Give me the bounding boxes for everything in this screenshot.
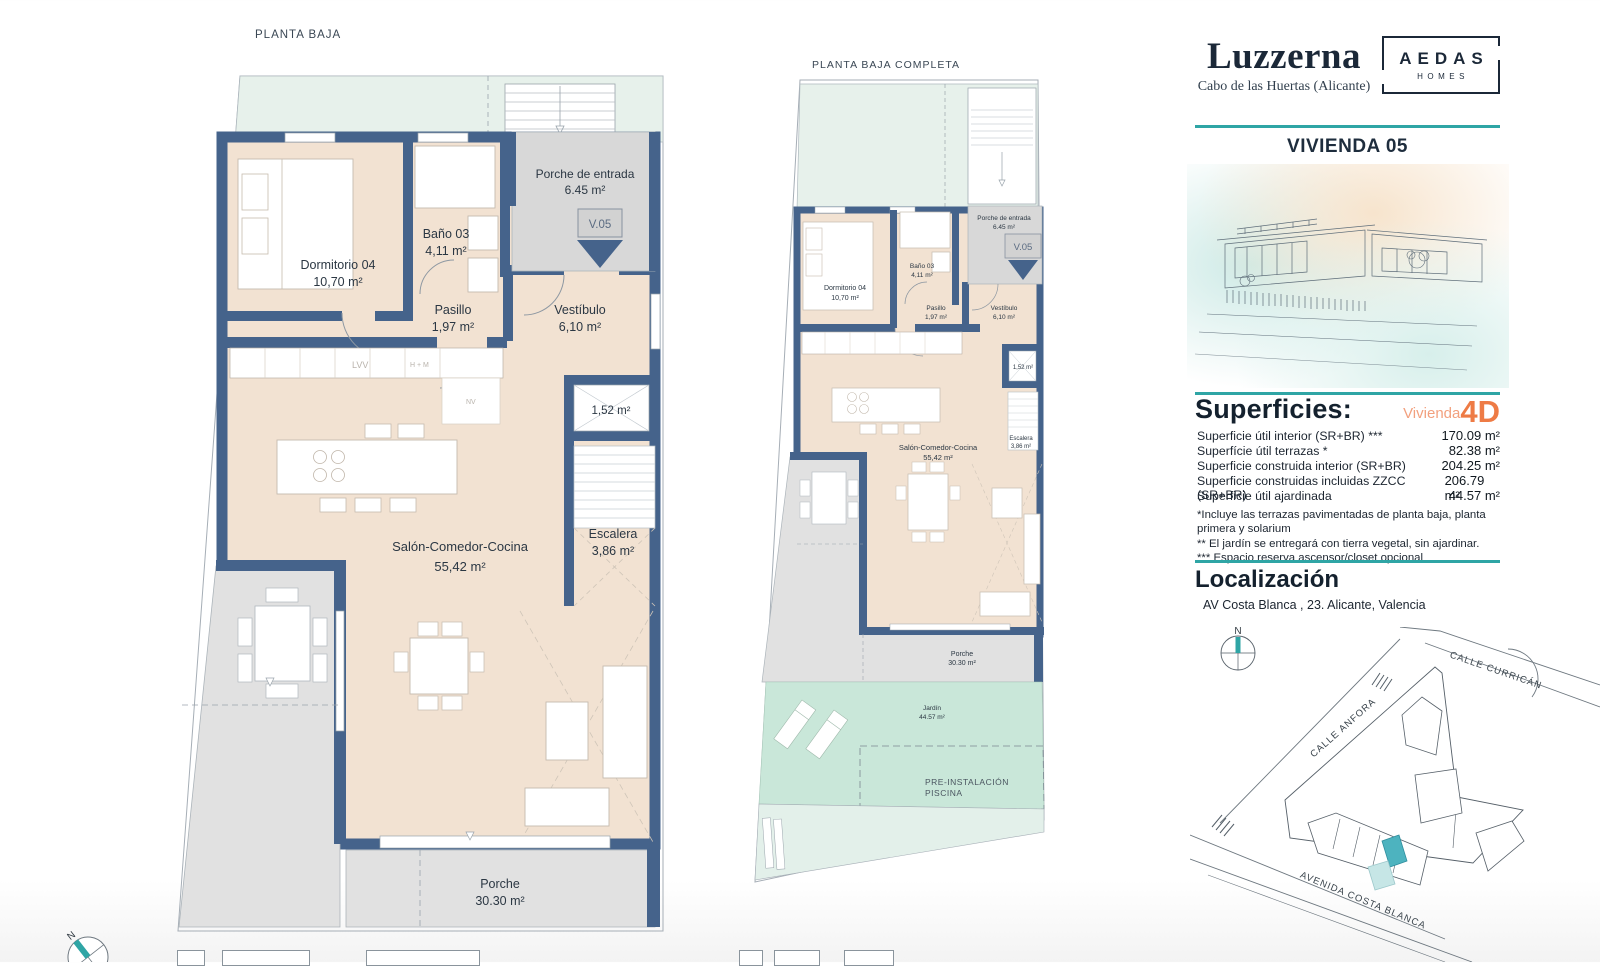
aedas-logo-subtext: HOMES — [1413, 72, 1469, 81]
divider — [1195, 125, 1500, 128]
piscina-line2: PISCINA — [925, 788, 963, 798]
glass-door — [380, 836, 610, 848]
scale-bar — [222, 950, 310, 966]
walkway — [755, 804, 1044, 880]
salon-area: 55,42 m² — [434, 559, 486, 574]
pasillo-area: 1,97 m² — [432, 320, 474, 334]
escalera-area: 3,86 m² — [1011, 444, 1031, 450]
footnote: *** Espacio reserva ascensor/closet opci… — [1197, 551, 1497, 565]
bano-area: 4,11 m² — [425, 244, 466, 258]
aedas-logo-text: AEDAS — [1393, 49, 1489, 69]
street-label-anfora: CALLE ANFORA — [1308, 696, 1378, 760]
plan-left-title: PLANTA BAJA — [255, 29, 341, 41]
row-value: 44.57 m² — [1449, 488, 1500, 503]
info-panel: Luzzerna Cabo de las Huertas (Alicante) … — [1195, 30, 1500, 600]
table-row: Superficie útil interior (SR+BR) *** 170… — [1197, 428, 1500, 443]
porche-name: Porche — [480, 877, 520, 891]
dormitorio-name: Dormitorio 04 — [300, 258, 375, 272]
jardin-name: Jardín — [923, 705, 941, 712]
kitchen-counter — [802, 332, 962, 354]
bano-name: Baño 03 — [910, 263, 935, 270]
exterior-stairs — [505, 84, 615, 138]
row-value: 204.25 m² — [1441, 458, 1500, 473]
toilet — [468, 258, 498, 292]
plan-north-compass: N — [48, 915, 128, 962]
scale-bar — [739, 950, 763, 966]
bano-name: Baño 03 — [423, 227, 470, 241]
escalera-name: Escalera — [1009, 436, 1033, 442]
window — [651, 294, 660, 349]
row-label: Superfície útil terrazas * — [1197, 444, 1328, 458]
crosswalk-hatch — [1212, 673, 1392, 836]
footnote: ** El jardín se entregará con tierra veg… — [1197, 537, 1497, 551]
vestibulo-area: 6,10 m² — [993, 314, 1016, 321]
floorplan-planta-baja-completa: PLANTA BAJA COMPLETA Porche de entrada 6… — [740, 52, 1070, 892]
window — [285, 133, 335, 142]
superficies-heading: Superficies: — [1195, 394, 1352, 425]
shower — [415, 146, 495, 208]
shaft-area: 1,52 m² — [592, 405, 631, 417]
divider — [1195, 560, 1500, 563]
scale-bar — [177, 950, 205, 966]
kitchen-label-lvv: LVV — [352, 360, 368, 370]
porche-entrada: Porche de entrada 6.45 m² V.05 — [506, 132, 659, 271]
aedas-logo: AEDAS HOMES — [1382, 36, 1500, 94]
dormitorio-area: 10,70 m² — [831, 295, 859, 302]
superficies-table: Superficie útil interior (SR+BR) *** 170… — [1197, 428, 1500, 503]
vestibulo-area: 6,10 m² — [559, 320, 601, 334]
vivienda-title: VIVIENDA 05 — [1195, 136, 1500, 158]
pasillo-name: Pasillo — [926, 305, 946, 312]
elevator-shaft: 1,52 m² — [1002, 344, 1043, 388]
project-subtitle: Cabo de las Huertas (Alicante) — [1195, 79, 1373, 95]
building-sketch — [1187, 164, 1509, 388]
porche-entrada-area: 6.45 m² — [993, 224, 1016, 231]
scale-bar — [774, 950, 820, 966]
row-value: 170.09 m² — [1441, 428, 1500, 443]
table-row: Superficie construidas incluidas ZZCC (S… — [1197, 473, 1500, 488]
bano-area: 4,11 m² — [911, 272, 933, 279]
escalera-area: 3,86 m² — [592, 544, 634, 558]
row-value: 82.38 m² — [1449, 443, 1500, 458]
porche: Porche 30.30 m² — [346, 844, 660, 927]
kitchen-label-hm: H + M — [410, 362, 429, 369]
footnote: *Incluye las terrazas pavimentadas de pl… — [1197, 508, 1497, 537]
localizacion-address: AV Costa Blanca , 23. Alicante, Valencia — [1203, 598, 1426, 612]
shaft-area: 1,52 m² — [1013, 365, 1033, 371]
vestibulo-name: Vestíbulo — [554, 303, 605, 317]
dormitorio-name: Dormitorio 04 — [824, 285, 866, 292]
porche-entrada-name: Porche de entrada — [977, 215, 1031, 222]
map-north-compass: N — [1221, 627, 1255, 670]
unit-label: V.05 — [589, 219, 612, 231]
porche-area: 30.30 m² — [948, 660, 976, 667]
row-label: Superficie construida interior (SR+BR) — [1197, 459, 1406, 473]
table-row: Superficie construida interior (SR+BR) 2… — [1197, 458, 1500, 473]
street-label-curricane: CALLE CURRICÁN — [1448, 650, 1543, 692]
project-title: Luzzerna — [1195, 38, 1373, 75]
porche-entrada-area: 6.45 m² — [565, 183, 606, 197]
vestibulo-name: Vestíbulo — [991, 305, 1018, 312]
salon-name: Salón-Comedor-Cocina — [392, 539, 529, 554]
dormitorio-area: 10,70 m² — [313, 275, 362, 289]
escalera: Escalera 3,86 m² — [1008, 392, 1038, 450]
porche-area: 30.30 m² — [475, 894, 524, 908]
map-north-label: N — [1234, 627, 1241, 637]
jardin-area: 44.57 m² — [919, 714, 945, 721]
porche-name: Porche — [951, 651, 973, 658]
brand-header: Luzzerna Cabo de las Huertas (Alicante) … — [1195, 30, 1500, 95]
dormitorio: Dormitorio 04 10,70 m² — [803, 222, 873, 310]
salon-name: Salón-Comedor-Cocina — [899, 443, 978, 452]
elevator-shaft: 1,52 m² — [564, 375, 659, 441]
scale-bar — [366, 950, 480, 966]
porche-entrada: Porche de entrada 6.45 m² V.05 — [968, 206, 1042, 284]
vivienda-label: Vivienda — [1403, 405, 1460, 422]
table-row: Superfície útil terrazas * 82.38 m² — [1197, 443, 1500, 458]
scale-bar — [844, 950, 894, 966]
plan-mid-title: PLANTA BAJA COMPLETA — [812, 59, 960, 71]
piscina-line1: PRE-INSTALACIÓN — [925, 777, 1009, 787]
row-label: Superficie útil ajardinada — [1197, 489, 1332, 503]
outdoor-table — [255, 606, 310, 681]
vivienda-type: 4D — [1460, 399, 1500, 425]
pasillo-area: 1,97 m² — [925, 314, 948, 321]
terrace — [797, 84, 1038, 210]
footnotes: *Incluye las terrazas pavimentadas de pl… — [1197, 508, 1497, 565]
pasillo-name: Pasillo — [435, 303, 472, 317]
unit-label: V.05 — [1014, 242, 1033, 253]
side-porch — [179, 560, 346, 927]
salon-area: 55,42 m² — [923, 453, 953, 462]
window — [418, 133, 468, 142]
jardin: Jardín 44.57 m² PRE-INSTALACIÓN PISCINA — [759, 682, 1044, 809]
escalera-name: Escalera — [589, 527, 638, 541]
localizacion-heading: Localización — [1195, 566, 1339, 594]
outdoor-table — [812, 472, 846, 524]
kitchen-label-nv: NV — [466, 399, 476, 406]
location-map: N CALLE ANFORA CALLE CURRICÁN AVENIDA CO… — [1190, 627, 1600, 962]
sink — [468, 216, 498, 250]
floorplan-planta-baja: PLANTA BAJA Porche de entrada 6.4 — [170, 26, 670, 940]
window — [815, 207, 845, 213]
superficies-header: Superficies: Vivienda 4D — [1195, 394, 1500, 425]
row-label: Superficie útil interior (SR+BR) *** — [1197, 429, 1383, 443]
porche-entrada-name: Porche de entrada — [536, 167, 635, 181]
